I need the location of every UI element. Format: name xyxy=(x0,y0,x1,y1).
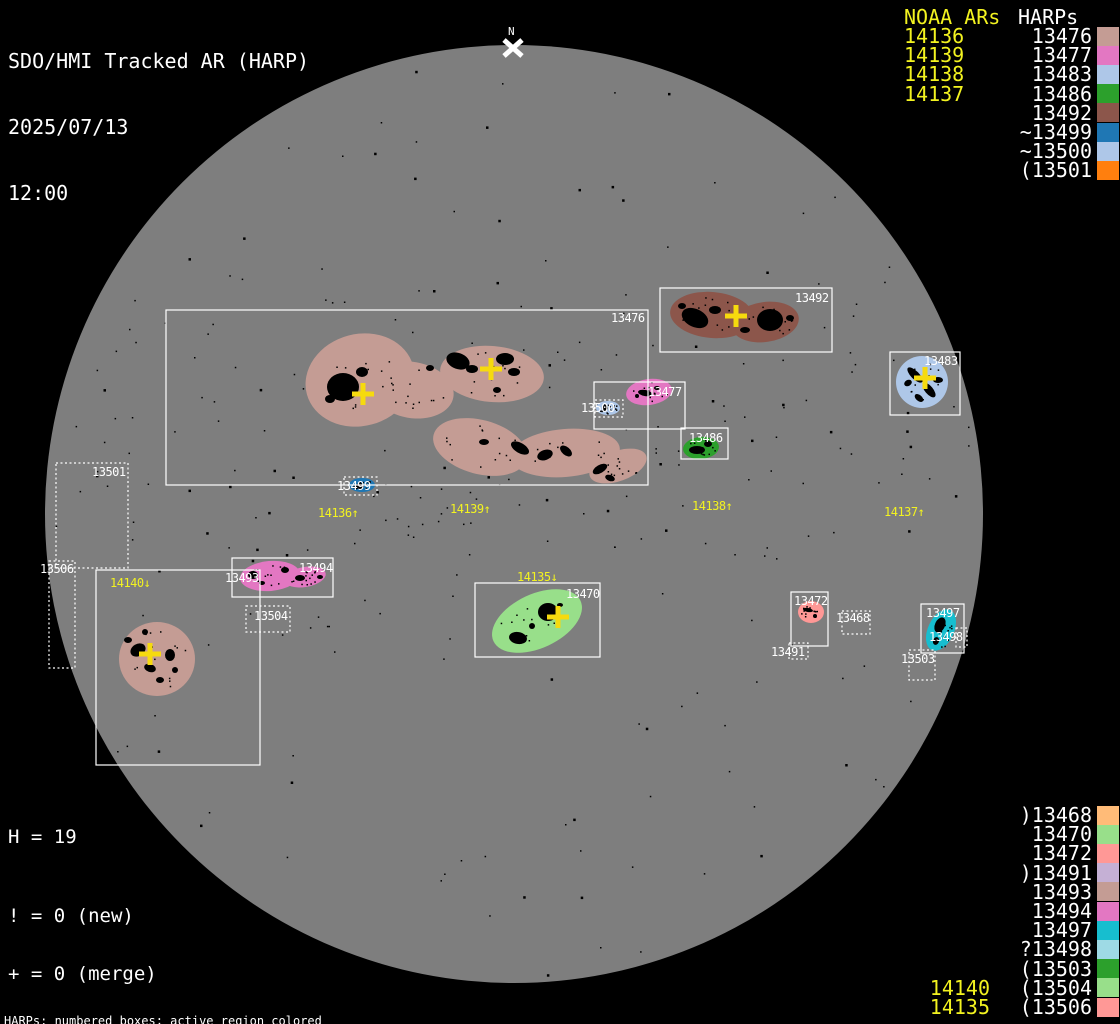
title-block: SDO/HMI Tracked AR (HARP) 2025/07/13 12:… xyxy=(8,6,309,248)
harp-label-13506: 13506 xyxy=(40,563,74,575)
noaa-label-14137: 14137↑ xyxy=(884,506,924,518)
legend-swatch-13486 xyxy=(1097,84,1119,103)
north-label: N xyxy=(508,26,515,37)
harp-label-13494: 13494 xyxy=(299,562,333,574)
legend-swatch-13493 xyxy=(1097,882,1119,901)
harp-label-13493: 13493 xyxy=(225,572,259,584)
harp-label-13483: 13483 xyxy=(924,355,958,367)
page-title: SDO/HMI Tracked AR (HARP) xyxy=(8,50,309,72)
legend-swatch-13498 xyxy=(1097,940,1119,959)
harp-label-13492: 13492 xyxy=(795,292,829,304)
harp-label-13472: 13472 xyxy=(794,595,828,607)
legend-swatch-13499 xyxy=(1097,123,1119,142)
legend-swatch-13491 xyxy=(1097,863,1119,882)
legend-swatch-13476 xyxy=(1097,27,1119,46)
harp-label-13497: 13497 xyxy=(926,607,960,619)
legend-swatch-13497 xyxy=(1097,921,1119,940)
noaa-label-14135: 14135↓ xyxy=(517,571,557,583)
legend-noaa-14137: 14137 xyxy=(904,85,964,104)
noaa-label-14140: 14140↓ xyxy=(110,577,150,589)
legend-swatch-13501 xyxy=(1097,161,1119,180)
flag-legend-line: + = 0 (merge) xyxy=(8,965,225,984)
harp-label-13500: 13500 xyxy=(581,402,615,414)
noaa-label-14139: 14139↑ xyxy=(450,503,490,515)
legend-harp-13506: (13506 xyxy=(1020,998,1092,1017)
footnote-harps: HARPs: numbered boxes; active region col… xyxy=(4,1015,423,1024)
legend-swatch-13500 xyxy=(1097,142,1119,161)
legend-swatch-13503 xyxy=(1097,959,1119,978)
harp-label-13486: 13486 xyxy=(689,432,723,444)
harp-label-13504: 13504 xyxy=(254,610,288,622)
harp-label-13503: 13503 xyxy=(901,653,935,665)
legend-swatch-13506 xyxy=(1097,998,1119,1017)
harp-label-13477: 13477 xyxy=(648,386,682,398)
harp-label-13501: 13501 xyxy=(92,466,126,478)
harp-map-stage: SDO/HMI Tracked AR (HARP) 2025/07/13 12:… xyxy=(0,0,1120,1024)
legend-swatch-13477 xyxy=(1097,46,1119,65)
legend-swatch-13472 xyxy=(1097,844,1119,863)
harp-label-13468: 13468 xyxy=(836,612,870,624)
legend-noaa-14135: 14135 xyxy=(930,998,990,1017)
harp-label-13498: 13498 xyxy=(929,631,963,643)
harp-label-13499: 13499 xyxy=(337,480,371,492)
noaa-label-14136: 14136↑ xyxy=(318,507,358,519)
date-label: 2025/07/13 xyxy=(8,116,309,138)
active-region-13493 xyxy=(119,622,195,696)
legend-swatch-13492 xyxy=(1097,103,1119,122)
harp-count: H = 19 xyxy=(8,828,77,847)
legend-harp-13501: (13501 xyxy=(1020,161,1092,180)
harp-label-13491: 13491 xyxy=(771,646,805,658)
harp-label-13470: 13470 xyxy=(566,588,600,600)
footnotes: HARPs: numbered boxes; active region col… xyxy=(4,990,423,1024)
legend-swatch-13504 xyxy=(1097,978,1119,997)
legend-swatch-13470 xyxy=(1097,825,1119,844)
legend-swatch-13468 xyxy=(1097,806,1119,825)
legend-swatch-13483 xyxy=(1097,65,1119,84)
time-label: 12:00 xyxy=(8,182,309,204)
noaa-label-14138: 14138↑ xyxy=(692,500,732,512)
legend-swatch-13494 xyxy=(1097,902,1119,921)
flag-legend-line: ! = 0 (new) xyxy=(8,907,225,926)
harp-label-13476: 13476 xyxy=(611,312,645,324)
